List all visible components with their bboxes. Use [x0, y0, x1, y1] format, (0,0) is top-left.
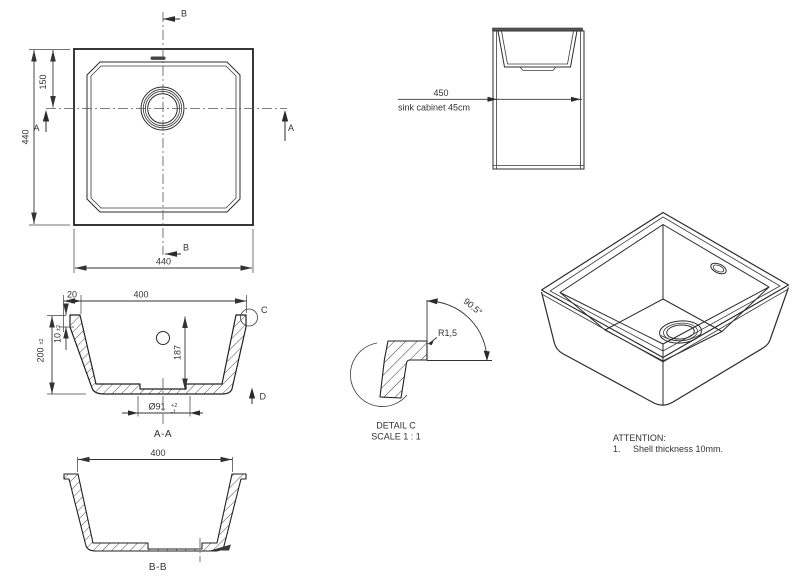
section-aa-dim-rim-label: 20: [67, 290, 77, 300]
section-aa-body: [70, 315, 246, 394]
section-aa-dim-depth-label: 200: [36, 347, 46, 362]
iso-rim-mid: [550, 217, 780, 351]
cabinet-dim-width-label: 450: [433, 88, 448, 98]
attention-item-number: 1.: [613, 444, 621, 454]
section-aa-title: A-A: [154, 429, 172, 440]
detail-c-radius-label: R1,5: [438, 328, 457, 338]
attention-note: ATTENTION: 1. Shell thickness 10mm.: [613, 433, 723, 454]
plan-rim-outer: [87, 62, 240, 212]
detail-c-radius-leader: [427, 338, 437, 346]
cabinet-outline: [493, 31, 584, 169]
section-aa-extension-lines: [47, 295, 247, 417]
section-aa-dim-inner-depth-label: 187: [173, 345, 183, 360]
plan-dim-drain-offset-label: 150: [38, 74, 48, 89]
countertop: [493, 28, 583, 31]
detail-c-ref-label: C: [261, 305, 268, 315]
iso-overflow-hole: [709, 261, 728, 276]
section-aa-dim-step-tol: ±2: [56, 325, 62, 331]
plan-dim-height-label: 440: [21, 129, 31, 144]
sink-technical-drawing: 440 150 440 A A B B 450 sink cabinet 4: [0, 0, 800, 579]
iso-drain: [659, 320, 702, 345]
section-bb-body: [64, 474, 246, 551]
cabinet-view: 450 sink cabinet 45cm: [398, 28, 584, 169]
iso-body-outline: [542, 288, 789, 406]
plan-section-b-bottom-label: B: [183, 243, 189, 253]
plan-extension-lines: [29, 50, 253, 274]
plan-section-arrows: [43, 16, 288, 257]
d-view-label: D: [260, 392, 267, 402]
plan-view: 440 150 440 A A B B: [21, 9, 295, 274]
iso-view: [542, 213, 789, 406]
plan-dimension-lines: [34, 50, 252, 268]
plan-outer-edge: [74, 49, 253, 225]
section-aa-dim-drain-label: Ø91: [148, 402, 165, 412]
section-bb-dim-width-label: 400: [150, 448, 165, 458]
plan-section-b-top-label: B: [181, 9, 187, 19]
cabinet-dimension: [398, 97, 582, 102]
cabinet-inner-lines: [493, 31, 584, 169]
iso-rim-outer: [542, 213, 789, 358]
plan-section-a-left-label: A: [33, 123, 39, 133]
section-bb-title: B-B: [149, 562, 167, 573]
section-bb-view: 400 B-B: [64, 448, 246, 573]
section-aa-dim-depth-tol: ±2: [39, 338, 45, 344]
section-aa-d-arrow: [249, 388, 255, 405]
iso-interior-edges: [560, 225, 769, 362]
technical-drawing-page: 440 150 440 A A B B 450 sink cabinet 4: [0, 0, 800, 579]
cabinet-caption: sink cabinet 45cm: [398, 103, 470, 113]
section-aa-dim-drain-tol-plus: +2: [171, 403, 177, 409]
detail-c-view: R1,5 90.5° DETAIL C SCALE 1 : 1: [350, 296, 492, 441]
section-aa-dim-step-label: 10: [53, 333, 63, 343]
section-aa-overflow-hole: [157, 332, 170, 345]
plan-dim-width-label: 440: [156, 257, 171, 267]
attention-item-text: Shell thickness 10mm.: [633, 444, 723, 454]
section-aa-dim-drain-tol-minus: -1: [171, 410, 176, 416]
section-aa-view: C D 20 400 10 ±2 200 ±2 187 Ø91 +2 -1 A-…: [36, 290, 269, 441]
detail-c-scale: SCALE 1 : 1: [371, 432, 421, 442]
attention-title: ATTENTION:: [613, 433, 666, 443]
section-aa-dim-opening-label: 400: [133, 290, 148, 300]
detail-c-title: DETAIL C: [376, 421, 416, 431]
cabinet-sink-profile: [498, 31, 577, 71]
plan-section-a-right-label: A: [288, 123, 294, 133]
detail-c-section: [380, 341, 427, 398]
